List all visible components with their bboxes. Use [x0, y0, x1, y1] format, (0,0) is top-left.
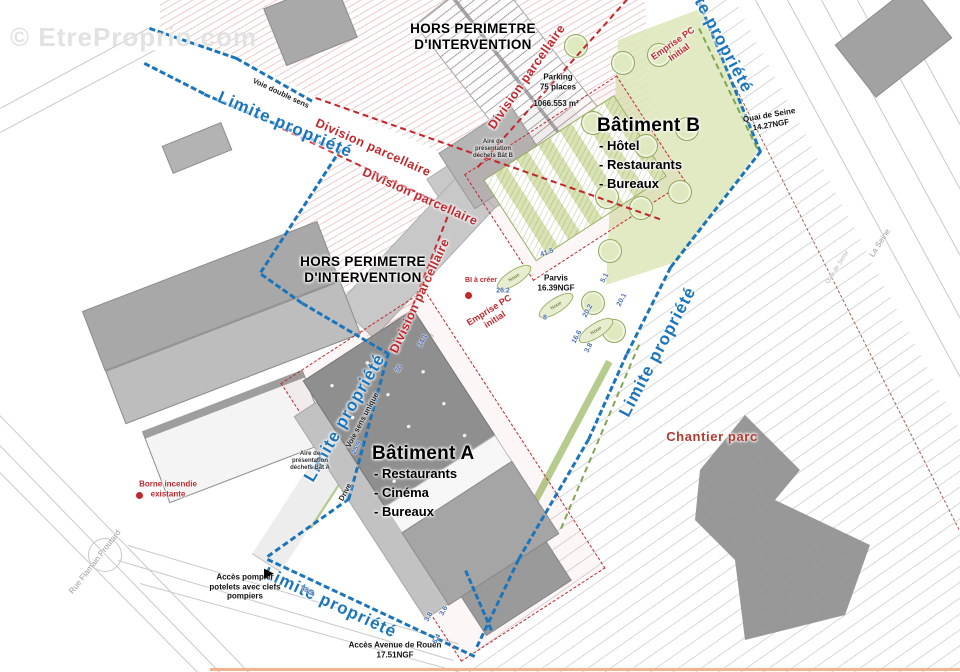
hors-perimetre-label: HORS PERIMETRE D'INTERVENTION — [410, 21, 536, 53]
watermark: © EtreProprio.com — [10, 22, 257, 53]
tree-icon — [611, 51, 635, 75]
dimension-label: 20.1 — [616, 292, 629, 307]
parking-label: Parking 75 places — [540, 72, 576, 91]
batiment-a-title: Bâtiment A — [372, 443, 475, 465]
la-seine-label: La Seine — [867, 227, 892, 259]
batiment-b-item: - Hôtel — [599, 137, 700, 156]
dimension-label: 26.2 — [496, 288, 510, 295]
acces-avenue-label: Accès Avenue de Rouen 17.51NGF — [349, 640, 442, 659]
road-line — [0, 50, 155, 133]
batiment-a-label-block: Bâtiment A - Restaurants - Cinéma - Bure… — [372, 443, 475, 522]
batiment-a-item: - Bureaux — [374, 503, 475, 522]
bi-a-creer-label: BI à créer — [465, 277, 497, 285]
borne-incendie-label: Borne incendie existante — [139, 479, 197, 498]
road-line — [0, 472, 198, 672]
borne-incendie-dot — [136, 492, 143, 499]
batiment-a-item: - Cinéma — [374, 484, 475, 503]
acces-pompier-arrow: ▶ — [264, 566, 274, 579]
limite-propriete-line — [144, 62, 205, 95]
aire-dechets-a-label: Aire de présentation déchets Bât A — [290, 451, 330, 473]
parvis-label: Parvis 16.39NGF — [538, 273, 575, 292]
site-plan: Bâtiment A - Restaurants - Cinéma - Bure… — [0, 0, 960, 672]
batiment-b-item: - Bureaux — [599, 175, 700, 194]
existing-building — [162, 122, 233, 174]
batiment-a-item: - Restaurants — [374, 465, 475, 484]
tree-icon — [598, 239, 622, 263]
hors-perimetre-label: HORS PERIMETRE D'INTERVENTION — [300, 254, 426, 286]
batiment-b-label-block: Bâtiment B - Hôtel - Restaurants - Burea… — [597, 115, 700, 194]
parking-area-label: 1066.553 m² — [533, 99, 578, 109]
aire-dechets-b-label: Aire de présentation déchets Bât B — [473, 139, 513, 161]
chantier-parc-label: Chantier parc — [666, 429, 758, 445]
batiment-b-title: Bâtiment B — [597, 115, 700, 137]
dimension-label: 8 — [543, 315, 547, 322]
bottom-edge-line — [210, 668, 960, 671]
dimension-label: 3.8 — [584, 342, 595, 354]
existing-building — [835, 0, 953, 98]
bi-a-creer-dot — [465, 292, 472, 299]
batiment-b-item: - Restaurants — [599, 156, 700, 175]
